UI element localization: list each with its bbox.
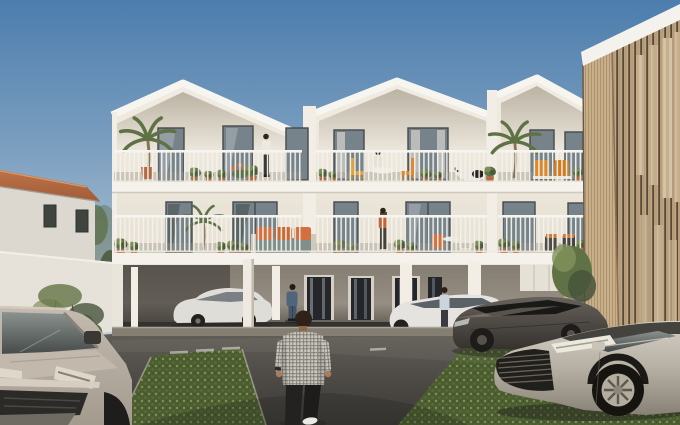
house-window [44,205,56,227]
wheel-hub [195,318,200,323]
floor-slab-lower [112,253,588,265]
house-window [76,210,88,232]
column [272,266,280,320]
floor-slab-upper [112,182,588,192]
side-mirror [592,342,605,350]
right-hand [325,371,331,377]
architectural-render [0,0,680,425]
wristwatch [275,367,281,371]
glazing-slit [310,278,313,319]
left-leg [285,385,303,425]
render-canvas [0,0,680,425]
railing-first-floor [114,215,586,252]
side-mirror [84,331,101,344]
first-floor [114,202,588,258]
column [131,267,138,329]
railing-top-floor [114,150,586,182]
glazing-slit [322,278,325,319]
glazing-slit [364,279,367,319]
wheel-hub [477,335,487,345]
glazing-slit [354,279,357,319]
van-bumper [0,413,76,425]
wheel-cap [614,386,623,395]
head [295,311,312,328]
left-hand [276,371,282,377]
